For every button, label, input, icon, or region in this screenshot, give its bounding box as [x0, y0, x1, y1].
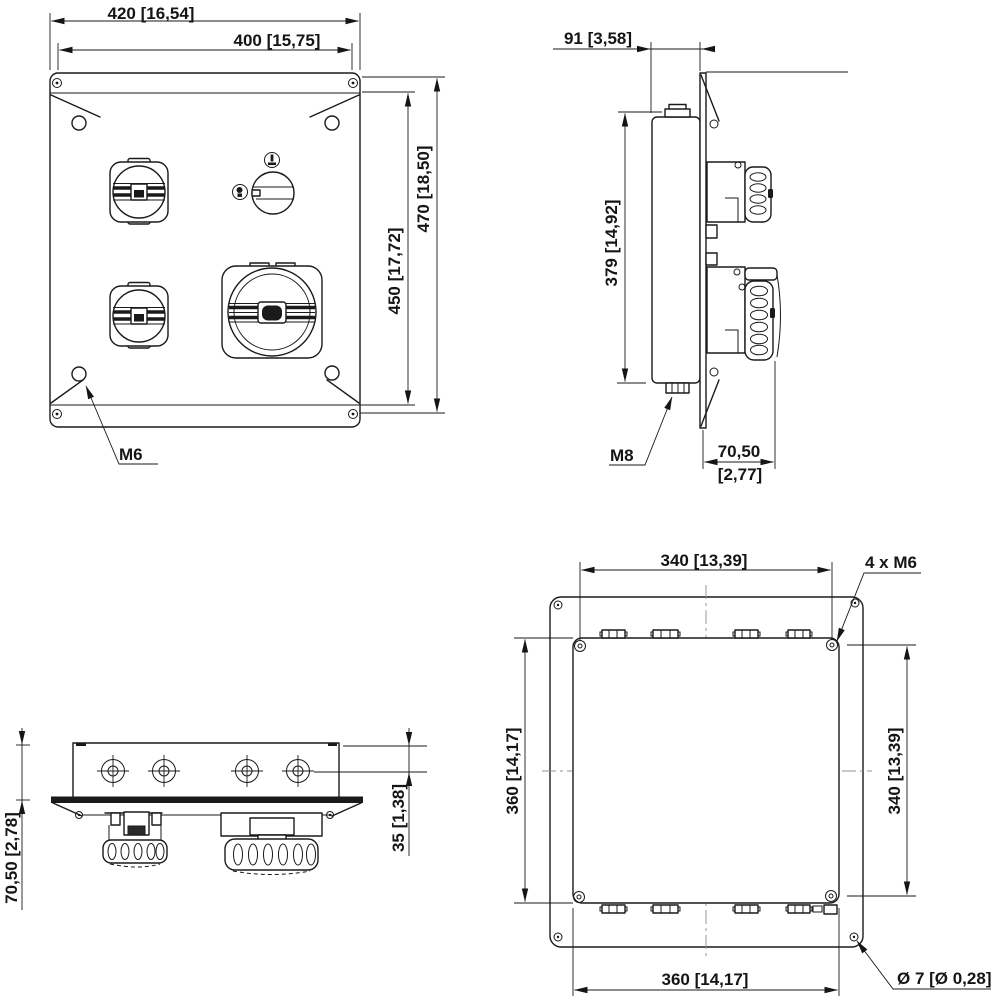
front-view: 420 [16,54] 400 [15,75] 450 [17,72] 470 … [50, 2, 445, 464]
side-socket-small [707, 162, 773, 222]
dim-label-rear-right: 340 [13,39] [885, 728, 904, 815]
bottom-front-plate-bar [51, 797, 363, 804]
rear-view: 340 [13,39] 4 x M6 360 [14,17] 340 [13,3… [503, 551, 991, 996]
dim-label-bottom-depth: 70,50 [2,78] [2, 812, 21, 904]
leader-side-m8: M8 [609, 397, 672, 465]
dim-side-protrusion: 70,50 [2,77] [703, 361, 775, 484]
dim-label-front-width-outer: 420 [16,54] [108, 4, 195, 23]
side-plate-screw-top [710, 120, 718, 128]
bottom-socket-large [221, 813, 322, 875]
dim-label-bottom-offset: 35 [1,38] [389, 784, 408, 852]
dimension-drawing: 420 [16,54] 400 [15,75] 450 [17,72] 470 … [0, 0, 996, 1000]
dim-label-front-height-outer: 470 [18,50] [414, 146, 433, 233]
socket-large [222, 263, 322, 358]
dim-label-side-depth: 91 [3,58] [564, 29, 632, 48]
dim-label-rear-left: 360 [14,17] [503, 728, 522, 815]
dim-front-height-inner: 450 [17,72] [362, 92, 415, 404]
side-top-gland [665, 105, 690, 118]
technical-drawing-page: 420 [16,54] 400 [15,75] 450 [17,72] 470 … [0, 0, 996, 1000]
bottom-view: 70,50 [2,78] 35 [1,38] [2, 728, 427, 910]
bottom-socket-small [103, 812, 167, 867]
label-side-m8: M8 [610, 446, 634, 465]
rear-enclosure-box [573, 638, 839, 903]
side-enclosure-box [652, 117, 700, 383]
side-stud-1 [706, 225, 717, 238]
label-front-m6: M6 [119, 445, 143, 464]
side-front-plate [700, 73, 706, 428]
socket-small-top [110, 159, 168, 225]
dim-side-depth: 91 [3,58] [553, 29, 714, 113]
dim-label-side-height: 379 [14,92] [602, 200, 621, 287]
dim-label-front-width-inner: 400 [15,75] [234, 31, 321, 50]
side-socket-large [707, 267, 781, 360]
label-rear-4xm6: 4 x M6 [865, 553, 917, 572]
side-plate-screw-bottom [710, 368, 718, 376]
front-plate [50, 73, 360, 427]
dim-label-side-protrusion-inch: [2,77] [718, 465, 762, 484]
leader-rear-hole-dia: Ø 7 [Ø 0,28] [857, 941, 991, 989]
side-bottom-stud-m8 [666, 383, 689, 393]
dim-label-rear-bottom: 360 [14,17] [662, 970, 749, 989]
dim-label-front-height-inner: 450 [17,72] [385, 228, 404, 315]
side-stud-2 [706, 253, 717, 265]
socket-small-bottom [110, 283, 168, 349]
side-view: 91 [3,58] 379 [14,92] M8 70,50 [2,77] [553, 29, 848, 484]
dim-label-side-protrusion-mm: 70,50 [718, 442, 761, 461]
dim-bottom-depth: 70,50 [2,78] [2, 728, 30, 910]
dim-label-rear-top: 340 [13,39] [661, 551, 748, 570]
dim-front-width-inner: 400 [15,75] [58, 31, 352, 70]
label-rear-hole-dia: Ø 7 [Ø 0,28] [897, 969, 991, 988]
